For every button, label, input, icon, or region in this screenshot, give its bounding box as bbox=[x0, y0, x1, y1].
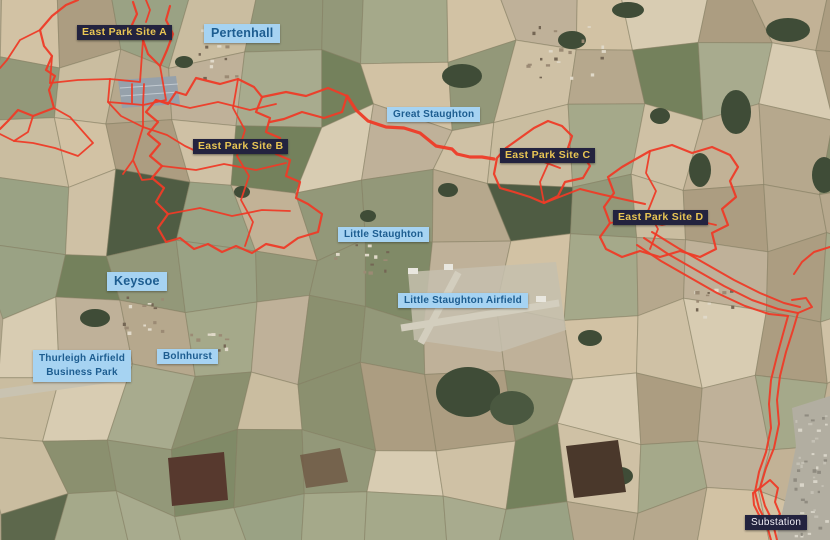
site-east-park-site-b-label: East Park Site B bbox=[193, 139, 288, 154]
site-east-park-site-c-label: East Park Site C bbox=[500, 148, 595, 163]
substation-label: Substation bbox=[745, 515, 807, 530]
place-bolnhurst-label: Bolnhurst bbox=[157, 349, 218, 364]
place-pertenhall-label: Pertenhall bbox=[204, 24, 280, 43]
site-east-park-site-a-label: East Park Site A bbox=[77, 25, 172, 40]
place-little-staughton-label: Little Staughton bbox=[338, 227, 429, 242]
place-little-staughton-airfield-label: Little Staughton Airfield bbox=[398, 293, 528, 308]
place-thurleigh-airfield-business-park-label: Thurleigh Airfield Business Park bbox=[33, 350, 131, 382]
map-canvas: East Park Site AEast Park Site BEast Par… bbox=[0, 0, 830, 540]
place-keysoe-label: Keysoe bbox=[107, 272, 167, 291]
place-great-staughton-label: Great Staughton bbox=[387, 107, 480, 122]
map-labels: East Park Site AEast Park Site BEast Par… bbox=[0, 0, 830, 540]
site-east-park-site-d-label: East Park Site D bbox=[613, 210, 708, 225]
